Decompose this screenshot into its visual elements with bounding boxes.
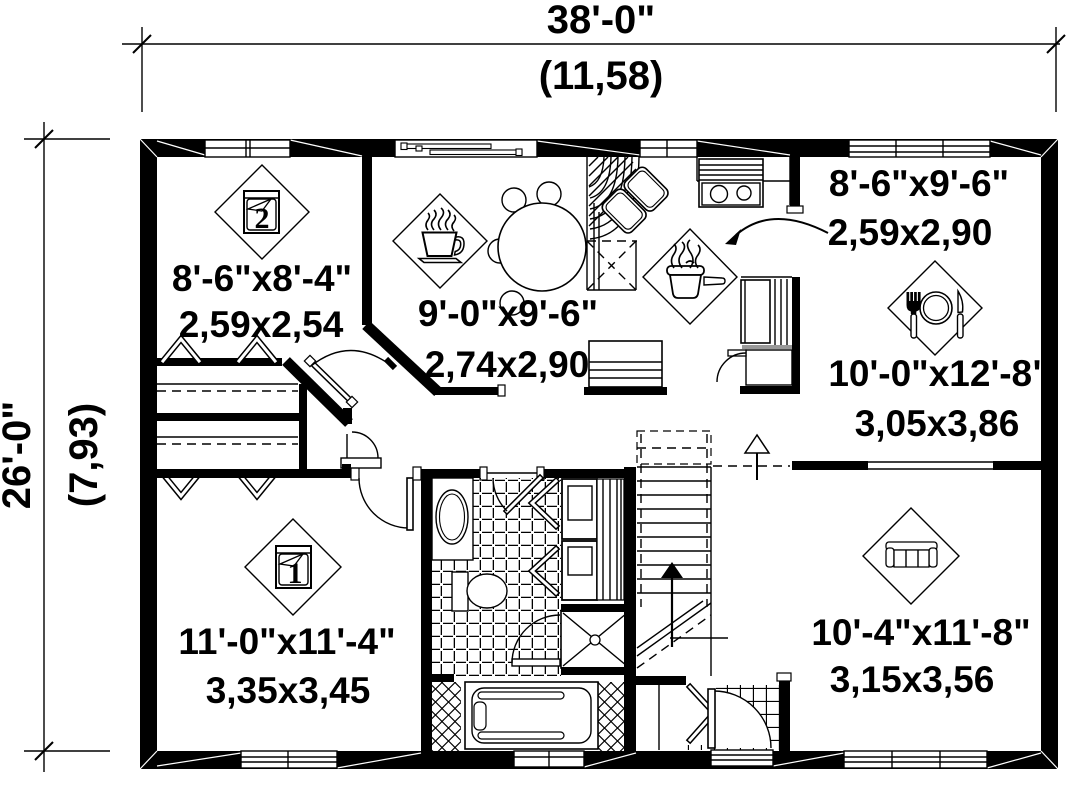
svg-text:8'-6"x9'-6": 8'-6"x9'-6" [829, 163, 1009, 204]
svg-text:10'-4"x11'-8": 10'-4"x11'-8" [811, 612, 1030, 653]
svg-text:38'-0": 38'-0" [547, 0, 656, 42]
svg-text:2,59x2,90: 2,59x2,90 [828, 212, 993, 253]
svg-text:3,35x3,45: 3,35x3,45 [206, 670, 371, 711]
svg-text:3,15x3,56: 3,15x3,56 [830, 659, 995, 700]
svg-text:(11,58): (11,58) [539, 54, 664, 98]
svg-text:9'-0"x9'-6": 9'-0"x9'-6" [418, 293, 598, 334]
svg-text:26'-0": 26'-0" [0, 401, 39, 510]
svg-text:2,59x2,54: 2,59x2,54 [179, 304, 344, 345]
svg-text:2: 2 [255, 202, 270, 235]
svg-text:3,05x3,86: 3,05x3,86 [855, 403, 1020, 444]
svg-text:(7,93): (7,93) [62, 403, 106, 508]
svg-text:10'-0"x12'-8": 10'-0"x12'-8" [828, 353, 1049, 394]
svg-text:2,74x2,90: 2,74x2,90 [425, 344, 590, 385]
svg-text:8'-6"x8'-4": 8'-6"x8'-4" [172, 258, 352, 299]
svg-text:11'-0"x11'-4": 11'-0"x11'-4" [178, 621, 395, 662]
svg-text:1: 1 [288, 557, 303, 590]
